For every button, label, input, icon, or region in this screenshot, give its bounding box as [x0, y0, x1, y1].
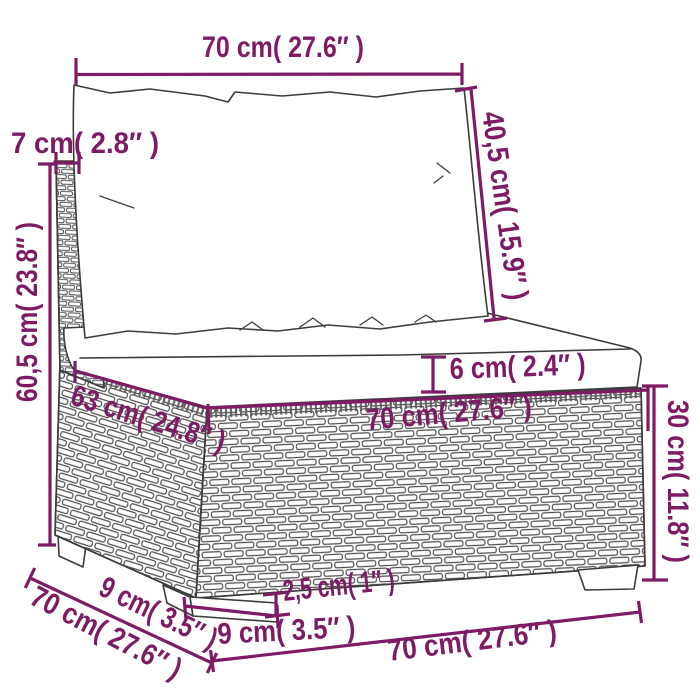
dimension-diagram-page: 70 cm( 27.6″ ) 40,5 cm( 15.9″ ) 7 cm( 2.… — [0, 0, 700, 700]
back-cushion — [73, 85, 488, 338]
sofa-dimension-diagram: 70 cm( 27.6″ ) 40,5 cm( 15.9″ ) 7 cm( 2.… — [0, 0, 700, 700]
dim-label-total-height: 60,5 cm( 23.8″ ) — [11, 222, 44, 402]
dim-label-seat-cushion-thickness: 6 cm( 2.4″ ) — [449, 348, 586, 386]
right-foot — [578, 565, 638, 590]
dim-label-top-width: 70 cm( 27.6″ ) — [202, 31, 364, 64]
dim-label-base-height: 30 cm( 11.8″ ) — [661, 400, 694, 563]
dim-label-bottom-front-width: 70 cm( 27.6″ ) — [386, 614, 559, 667]
dim-label-front-foot-width: 9 cm( 3.5″ ) — [217, 611, 357, 651]
dim-label-back-thickness: 7 cm( 2.8″ ) — [11, 127, 159, 160]
